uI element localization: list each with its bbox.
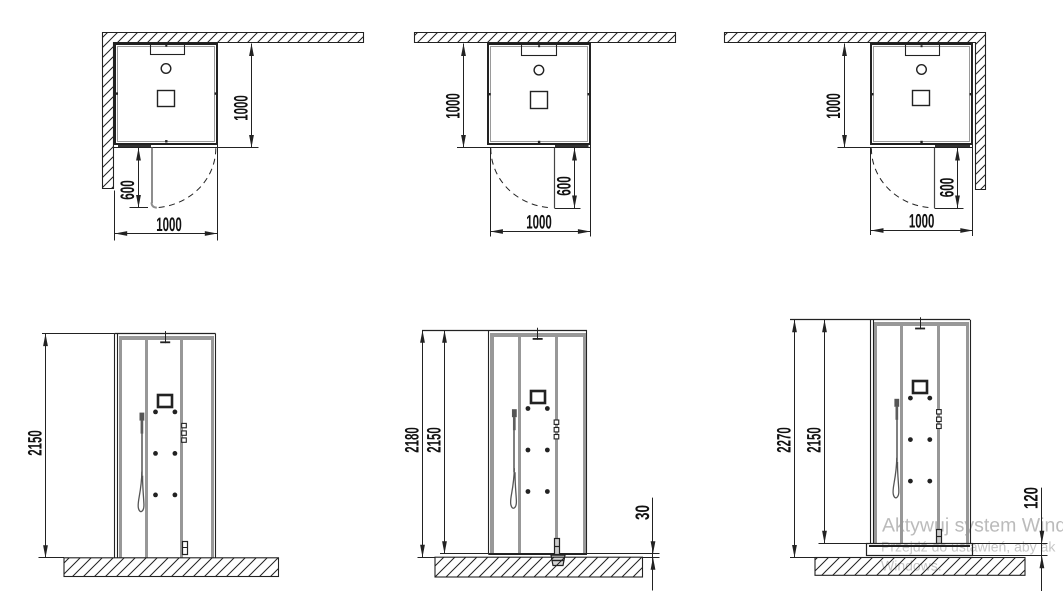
svg-text:2150: 2150 [424,427,446,453]
svg-text:2180: 2180 [402,427,424,453]
svg-text:1000: 1000 [156,214,182,236]
svg-text:2150: 2150 [25,430,47,456]
svg-text:2270: 2270 [774,427,796,453]
svg-text:600: 600 [117,180,139,200]
svg-text:30: 30 [632,505,654,520]
svg-text:600: 600 [554,176,576,196]
svg-text:1000: 1000 [443,93,465,119]
svg-text:1000: 1000 [823,93,845,119]
svg-text:1000: 1000 [231,95,253,121]
svg-text:120: 120 [1021,487,1043,509]
svg-text:2150: 2150 [804,427,826,453]
svg-text:600: 600 [937,178,959,198]
svg-text:Aktywuj system Windows: Aktywuj system Windows [882,515,1063,537]
svg-text:1000: 1000 [526,212,552,234]
svg-text:1000: 1000 [909,211,935,233]
